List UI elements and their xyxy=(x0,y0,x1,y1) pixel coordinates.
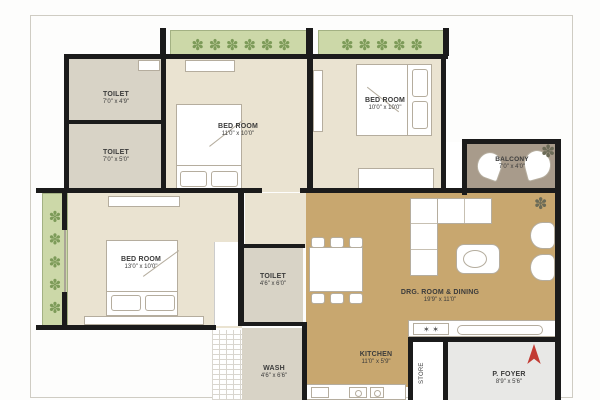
armchair xyxy=(530,254,555,281)
wall-stub xyxy=(443,28,449,56)
plant-icons: ✽ ✽ ✽ ✽ ✽ ✽ xyxy=(191,36,290,54)
room-dims: 10'0" x 10'0" xyxy=(342,105,428,113)
room-label-wash: WASH 4'6" x 6'6" xyxy=(234,364,314,381)
room-label-bedroom-left: BED ROOM 13'0" x 10'0" xyxy=(98,255,184,272)
pillow xyxy=(412,69,428,97)
bed xyxy=(176,104,242,192)
room-dims: 7'0" x 5'0" xyxy=(76,157,156,165)
wall-segment xyxy=(555,139,561,400)
wall-segment xyxy=(300,188,560,193)
bed xyxy=(106,240,178,316)
sofa-vertical xyxy=(410,198,438,276)
wall-stub xyxy=(306,28,313,56)
room-label-bedroom-right: BED ROOM 10'0" x 10'0" xyxy=(342,96,428,113)
room-name: BED ROOM xyxy=(98,255,184,264)
room-label-toilet-mid: TOILET 7'0" x 5'0" xyxy=(76,148,156,165)
room-label-kitchen: KITCHEN 11'0" x 5'9" xyxy=(336,350,416,367)
room-label-bedroom-center: BED ROOM 11'0" x 10'0" xyxy=(195,122,281,139)
bed-sheet-line xyxy=(107,291,177,292)
room-name: TOILET xyxy=(76,148,156,157)
room-dims: 13'0" x 10'0" xyxy=(98,264,184,272)
wall-segment xyxy=(238,190,244,326)
pillow xyxy=(145,295,175,311)
room-label-drg-dining: DRG. ROOM & DINING 19'9" x 11'0" xyxy=(375,288,505,305)
wall-segment xyxy=(64,120,166,124)
wall-segment xyxy=(302,322,307,400)
dining-chair xyxy=(330,293,344,304)
wall-segment xyxy=(240,244,305,248)
room-dims: 4'6" x 6'6" xyxy=(234,373,314,381)
bed-sheet-line xyxy=(177,165,241,166)
room-name: KITCHEN xyxy=(336,350,416,359)
living-plant-icon: ✽ xyxy=(534,196,547,212)
room-dims: 8'9" x 5'6" xyxy=(464,379,554,387)
pillow xyxy=(211,171,238,187)
dresser xyxy=(185,60,235,72)
room-name: TOILET xyxy=(233,272,313,281)
room-name: TOILET xyxy=(76,90,156,99)
room-name: STORE xyxy=(419,352,427,394)
wardrobe xyxy=(358,168,434,189)
sink-unit xyxy=(311,387,329,398)
wardrobe xyxy=(313,70,323,132)
wall-segment xyxy=(441,54,446,193)
wall-segment xyxy=(240,322,305,326)
room-store xyxy=(413,342,443,400)
room-dims: 7'0" x 4'0" xyxy=(472,164,552,172)
floor-plan: ✽ ✽ ✽ ✽ ✽ ✽ ✽ ✽ ✽ ✽ ✽ ✽ ✽ ✽ ✽ ✽ ✽ xyxy=(0,0,600,400)
dresser xyxy=(108,196,180,207)
coffee-table-decor xyxy=(463,250,487,268)
room-name: DRG. ROOM & DINING xyxy=(375,288,505,297)
room-dims: 7'0" x 4'9" xyxy=(76,99,156,107)
kitchen-counter: ✶ ✶ xyxy=(408,320,557,337)
wall-segment xyxy=(64,54,448,59)
plant-icons: ✽ ✽ ✽ ✽ ✽ xyxy=(341,36,423,54)
room-dims: 11'0" x 5'9" xyxy=(336,359,416,367)
room-name: P. FOYER xyxy=(464,370,554,379)
coffee-table xyxy=(456,244,500,274)
bench xyxy=(84,316,204,325)
wall-segment xyxy=(462,139,561,144)
armchair xyxy=(530,222,555,249)
room-label-foyer: P. FOYER 8'9" x 5'6" xyxy=(464,370,554,387)
room-name: BED ROOM xyxy=(195,122,281,131)
corridor xyxy=(245,193,306,248)
room-label-store: STORE xyxy=(419,352,427,394)
burner-icons: ✶ ✶ xyxy=(423,325,439,334)
pillow xyxy=(111,295,141,311)
dining-chair xyxy=(311,293,325,304)
room-dims: 4'6" x 6'0" xyxy=(233,281,313,289)
hob-ring xyxy=(374,390,381,397)
room-dims: 19'9" x 11'0" xyxy=(375,297,505,305)
hob-unit xyxy=(370,387,384,398)
wall-segment xyxy=(462,139,467,195)
dining-chair xyxy=(349,293,363,304)
counter-shelf xyxy=(457,325,543,335)
pillow xyxy=(180,171,207,187)
wall-segment xyxy=(64,54,69,192)
wall-stub xyxy=(160,28,166,56)
room-label-toilet-top: TOILET 7'0" x 4'9" xyxy=(76,90,156,107)
wall-segment xyxy=(307,54,313,193)
room-label-toilet-inner: TOILET 4'6" x 6'0" xyxy=(233,272,313,289)
toilet-fixture xyxy=(138,60,160,71)
wall-segment xyxy=(62,292,67,330)
wall-segment xyxy=(36,188,262,193)
room-name: BALCONY xyxy=(472,156,552,164)
wall-segment xyxy=(408,337,413,400)
room-label-balcony: BALCONY 7'0" x 4'0" xyxy=(472,156,552,172)
wall-segment xyxy=(62,188,67,230)
wall-segment xyxy=(161,54,166,193)
sink-bowl xyxy=(355,390,362,397)
sink-unit xyxy=(349,387,367,398)
wall-segment xyxy=(443,337,448,400)
window-line xyxy=(64,230,66,292)
dining-table xyxy=(309,247,363,292)
room-name: BED ROOM xyxy=(342,96,428,105)
kitchen-platform xyxy=(306,384,406,400)
wall-segment xyxy=(408,337,560,342)
room-name: WASH xyxy=(234,364,314,373)
room-dims: 11'0" x 10'0" xyxy=(195,131,281,139)
gas-burner: ✶ ✶ xyxy=(413,323,449,335)
